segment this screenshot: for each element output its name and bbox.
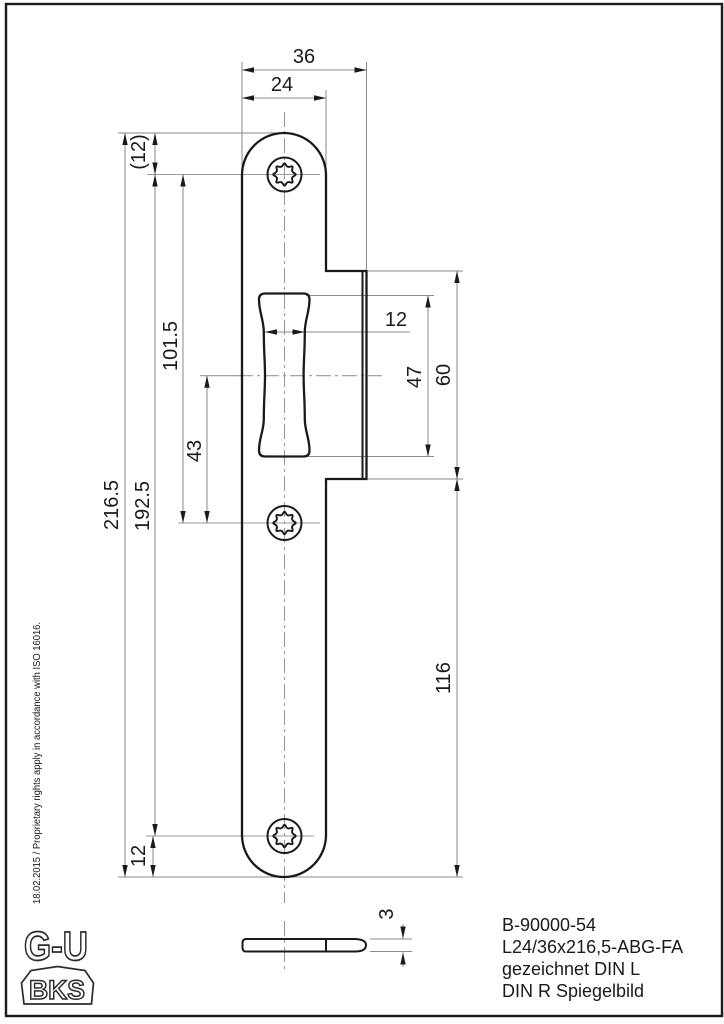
part-designation: L24/36x216,5-ABG-FA (502, 937, 683, 957)
strike-plate-front-view (242, 133, 367, 877)
dim-top-hole-offset: (12) (128, 134, 150, 170)
dimension-lines (125, 70, 457, 967)
proprietary-rights-note: 18.02.2015 / Proprietary rights apply in… (31, 622, 43, 904)
gu-logo-text: G-U (24, 923, 88, 969)
dim-total-length: 216.5 (101, 480, 123, 530)
dim-bottom-hole-offset: 12 (128, 845, 150, 867)
plate-outline (242, 133, 367, 877)
dim-lip-length: 60 (433, 364, 455, 386)
gu-logo: G-U (24, 923, 88, 969)
title-block: B-90000-54 L24/36x216,5-ABG-FA gezeichne… (502, 915, 683, 1001)
strike-plate-side-view (243, 939, 367, 952)
dim-thickness: 3 (376, 908, 398, 919)
dim-slot-length: 47 (404, 366, 426, 388)
dimension-labels: 36 24 216.5 192.5 101.5 43 (12) 12 12 47… (101, 46, 455, 920)
dim-lip-to-bottom: 116 (433, 662, 455, 694)
part-number: B-90000-54 (502, 915, 596, 935)
dim-plate-width: 24 (271, 74, 293, 96)
drawn-note: gezeichnet DIN L (502, 959, 640, 979)
drawing-sheet: 36 24 216.5 192.5 101.5 43 (12) 12 12 47… (0, 0, 724, 1024)
side-profile-outline (243, 939, 367, 952)
dim-hole-spacing: 192.5 (132, 481, 154, 531)
dim-outer-width: 36 (293, 46, 315, 68)
dim-slot-to-hole: 43 (184, 440, 206, 462)
technical-drawing: 36 24 216.5 192.5 101.5 43 (12) 12 12 47… (0, 0, 724, 1024)
dim-top-to-middle-hole: 101.5 (160, 321, 182, 371)
mirror-note: DIN R Spiegelbild (502, 981, 644, 1001)
dim-slot-width: 12 (385, 309, 407, 331)
bks-logo-text: BKS (29, 975, 85, 1005)
centerlines (146, 112, 382, 969)
bks-logo: BKS (22, 967, 94, 1006)
